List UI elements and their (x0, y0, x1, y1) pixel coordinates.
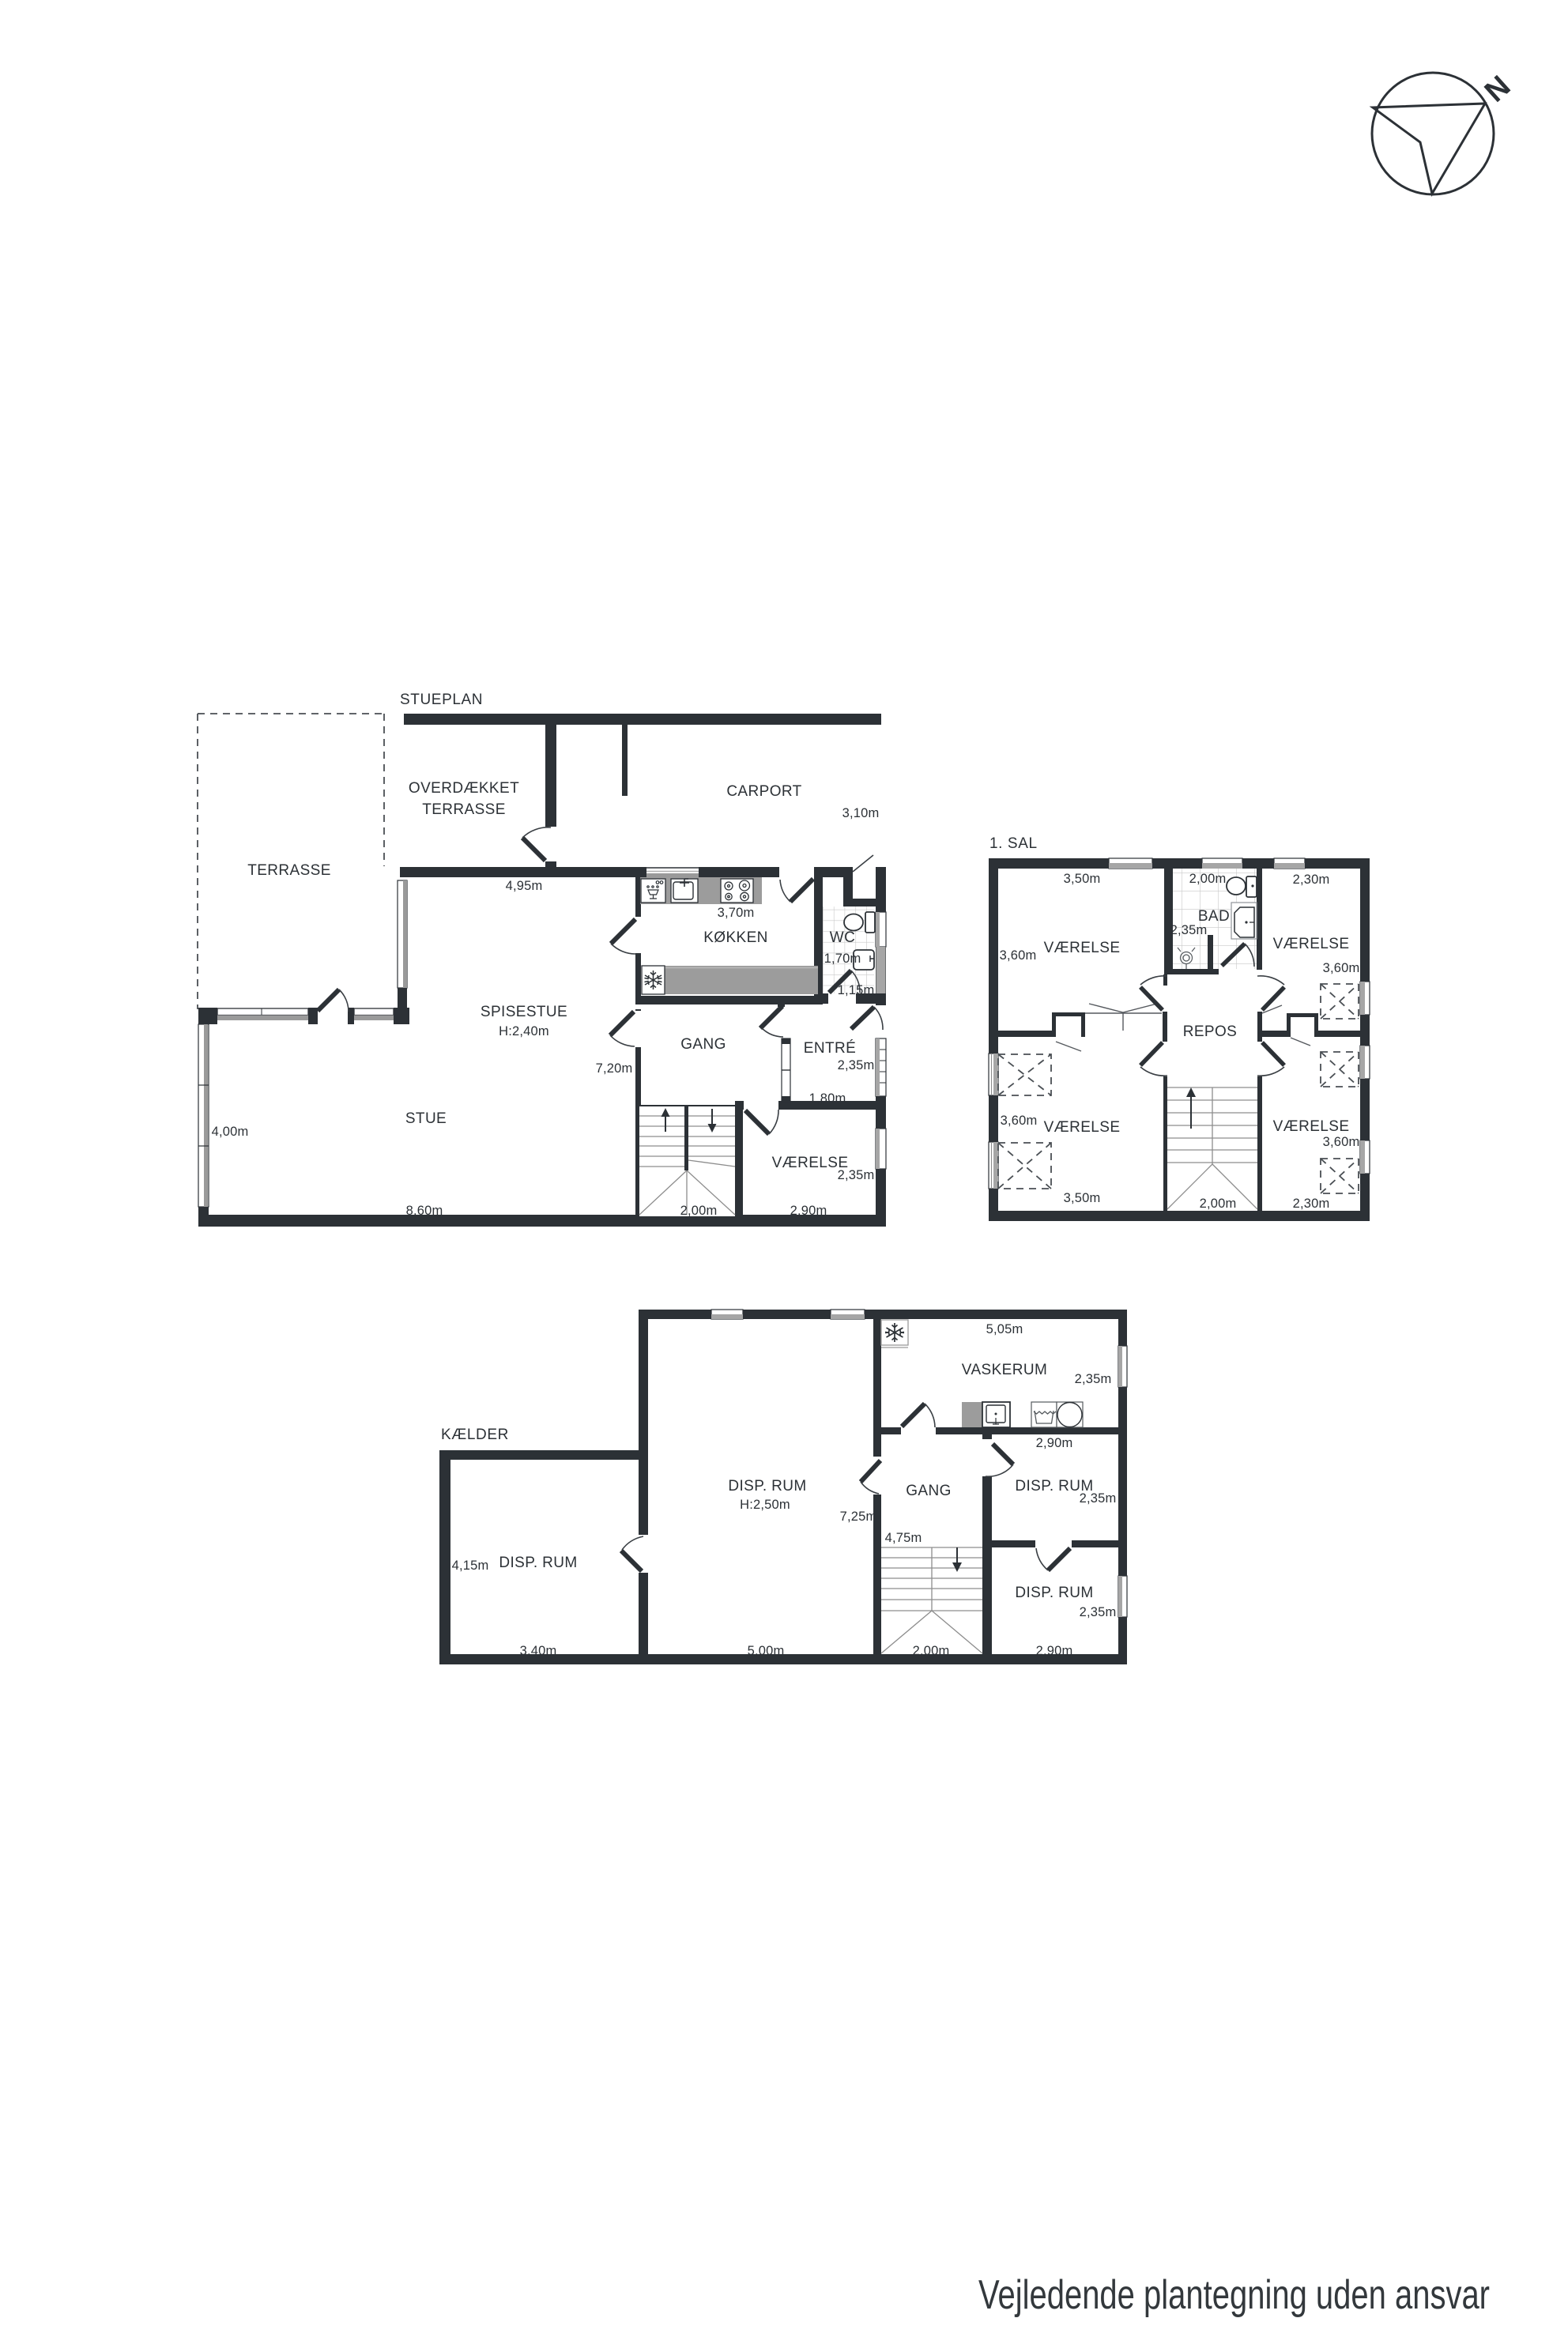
svg-text:DISP. RUM: DISP. RUM (499, 1555, 577, 1571)
svg-text:2,35m: 2,35m (838, 1168, 875, 1182)
svg-text:VÆRELSE: VÆRELSE (1044, 940, 1121, 956)
svg-text:3,50m: 3,50m (1064, 1191, 1101, 1205)
svg-text:2,35m: 2,35m (1170, 923, 1208, 937)
svg-text:TERRASSE: TERRASSE (422, 801, 506, 818)
svg-text:VÆRELSE: VÆRELSE (1273, 936, 1350, 952)
svg-text:1,80m: 1,80m (809, 1091, 846, 1106)
svg-text:2,35m: 2,35m (838, 1058, 875, 1072)
svg-text:5,00m: 5,00m (748, 1644, 785, 1658)
svg-text:VÆRELSE: VÆRELSE (1273, 1118, 1350, 1135)
svg-text:DISP. RUM: DISP. RUM (728, 1478, 806, 1494)
svg-text:OVERDÆKKET: OVERDÆKKET (409, 780, 519, 797)
svg-text:REPOS: REPOS (1183, 1023, 1238, 1040)
svg-text:2,90m: 2,90m (1036, 1644, 1073, 1658)
svg-text:2,00m: 2,00m (680, 1204, 718, 1218)
svg-text:2,35m: 2,35m (1080, 1605, 1117, 1619)
svg-text:TERRASSE: TERRASSE (247, 862, 331, 879)
svg-text:3,40m: 3,40m (520, 1644, 557, 1658)
svg-text:ENTRÉ: ENTRÉ (804, 1040, 856, 1057)
svg-text:VÆRELSE: VÆRELSE (1044, 1119, 1121, 1136)
svg-text:2,30m: 2,30m (1293, 873, 1330, 887)
svg-text:GANG: GANG (906, 1483, 952, 1499)
svg-text:4,00m: 4,00m (212, 1125, 249, 1139)
svg-text:WC: WC (830, 929, 855, 946)
svg-text:4,15m: 4,15m (452, 1559, 489, 1573)
svg-text:2,00m: 2,00m (913, 1644, 950, 1658)
svg-text:1,15m: 1,15m (838, 983, 875, 997)
svg-text:STUEPLAN: STUEPLAN (400, 692, 483, 708)
svg-text:3,60m: 3,60m (1000, 948, 1037, 963)
svg-text:3,60m: 3,60m (1323, 961, 1360, 975)
svg-text:2,30m: 2,30m (1293, 1197, 1330, 1211)
svg-text:1,70m: 1,70m (824, 952, 861, 966)
svg-text:5,05m: 5,05m (986, 1322, 1023, 1336)
svg-text:7,20m: 7,20m (596, 1061, 633, 1076)
svg-text:4,95m: 4,95m (506, 879, 543, 893)
svg-text:CARPORT: CARPORT (726, 783, 801, 800)
svg-text:8,60m: 8,60m (406, 1204, 443, 1218)
svg-text:1. SAL: 1. SAL (989, 835, 1038, 852)
svg-text:7,25m: 7,25m (840, 1510, 877, 1524)
svg-text:2,00m: 2,00m (1200, 1197, 1237, 1211)
svg-text:3,60m: 3,60m (1323, 1135, 1360, 1149)
svg-text:3,10m: 3,10m (842, 806, 880, 820)
svg-text:3,60m: 3,60m (1001, 1114, 1038, 1128)
svg-text:KØKKEN: KØKKEN (703, 929, 768, 946)
svg-text:SPISESTUE: SPISESTUE (481, 1004, 567, 1020)
svg-text:2,00m: 2,00m (1189, 872, 1227, 886)
svg-text:3,70m: 3,70m (718, 906, 755, 920)
svg-text:VASKERUM: VASKERUM (962, 1362, 1047, 1378)
svg-text:2,90m: 2,90m (790, 1204, 827, 1218)
svg-text:H:2,40m: H:2,40m (499, 1024, 549, 1038)
svg-text:Vejledende plantegning uden an: Vejledende plantegning uden ansvar (978, 2272, 1490, 2318)
svg-text:2,35m: 2,35m (1075, 1372, 1112, 1386)
svg-text:H:2,50m: H:2,50m (740, 1498, 790, 1512)
svg-text:2,90m: 2,90m (1036, 1436, 1073, 1450)
svg-text:DISP. RUM: DISP. RUM (1015, 1585, 1093, 1601)
svg-text:4,75m: 4,75m (885, 1531, 922, 1545)
svg-text:3,50m: 3,50m (1064, 872, 1101, 886)
svg-text:BAD: BAD (1198, 908, 1230, 925)
svg-text:2,35m: 2,35m (1080, 1491, 1117, 1506)
svg-text:KÆLDER: KÆLDER (441, 1427, 509, 1443)
svg-text:STUE: STUE (405, 1110, 447, 1127)
svg-text:GANG: GANG (680, 1036, 726, 1053)
